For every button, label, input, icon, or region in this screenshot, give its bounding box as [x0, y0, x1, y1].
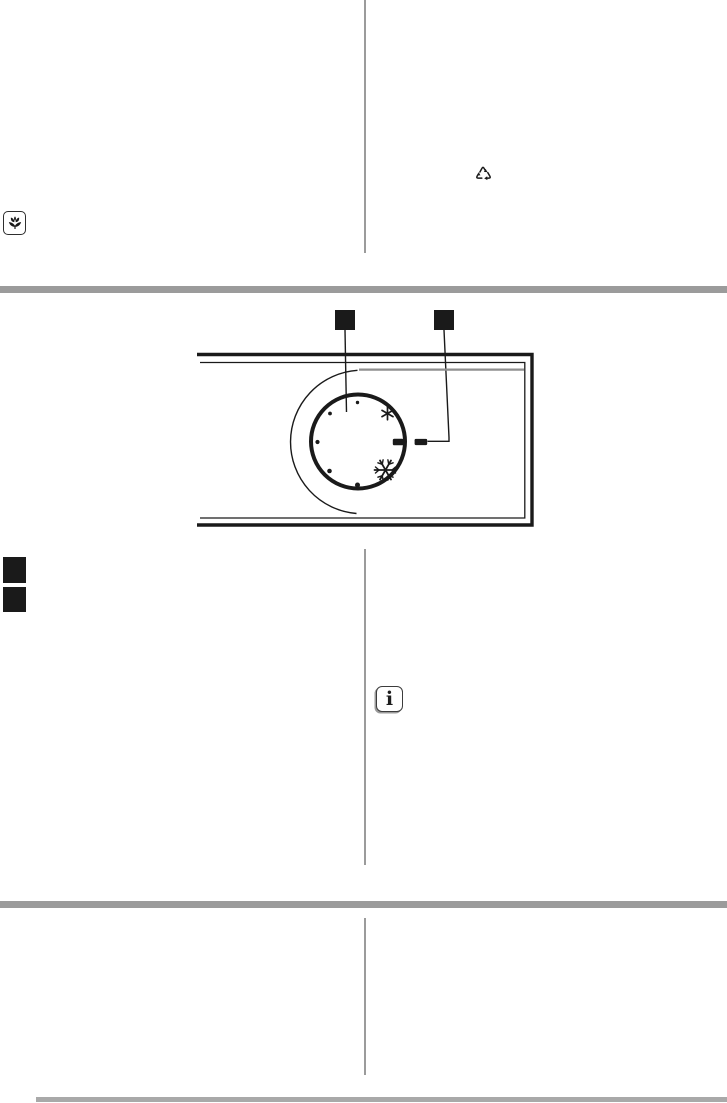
recycling-glyph [471, 163, 495, 185]
flower-icon [3, 211, 26, 235]
callout-2-leader [428, 330, 450, 441]
manual-page: i [0, 0, 727, 1103]
temperature-dial [311, 395, 405, 489]
panel-inner-edge [200, 363, 525, 519]
dial-recess-arc [291, 370, 358, 513]
flower-glyph [6, 214, 24, 232]
recycling-icon [471, 163, 495, 185]
list-marker-1 [3, 557, 26, 583]
callout-1-marker [335, 310, 355, 330]
control-panel-figure [185, 300, 545, 545]
info-icon: i [376, 686, 403, 712]
column-divider-bottom [364, 918, 366, 1075]
callout-2-marker [434, 310, 454, 330]
column-divider-middle [364, 549, 366, 865]
info-glyph: i [386, 690, 393, 709]
panel-outer-edge [197, 355, 532, 526]
callout-1-leader [345, 330, 347, 412]
section-rule-1 [0, 286, 727, 293]
dial-dash-mark [393, 439, 404, 446]
panel-dash-mark [415, 439, 428, 445]
list-marker-2 [3, 587, 26, 612]
column-divider-top [364, 0, 366, 253]
footer-rule [36, 1097, 727, 1102]
section-rule-2 [0, 901, 727, 908]
